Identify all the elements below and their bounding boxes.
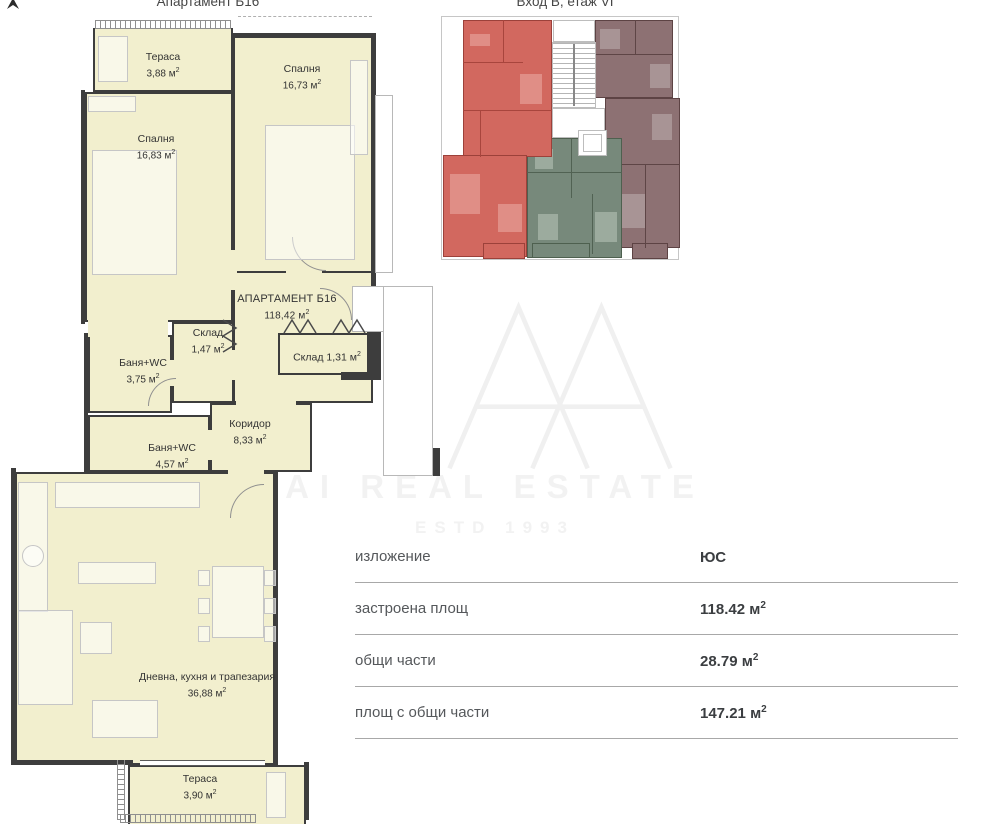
- opening: [236, 399, 296, 407]
- wall-segment: [273, 470, 278, 766]
- mini-unit-mauve-terrace: [632, 243, 668, 259]
- room-label-storage-131: Склад 1,31 м2: [275, 348, 379, 365]
- furniture-dining-table: [212, 566, 264, 638]
- mini-wall: [635, 20, 636, 54]
- row-value: 147.21 м2: [700, 704, 958, 722]
- mini-furniture: [470, 34, 490, 46]
- mini-wall: [571, 138, 572, 198]
- apartment-title: Апартамент Б16: [98, 0, 318, 9]
- brand-monogram-icon: [425, 298, 695, 473]
- wall-segment: [81, 90, 85, 324]
- wall-segment: [84, 333, 88, 473]
- mini-stair-stringer: [573, 44, 575, 106]
- mini-elevator-car: [583, 134, 602, 152]
- mini-furniture: [498, 204, 522, 232]
- row-label: изложение: [355, 548, 700, 565]
- mini-wall: [645, 164, 646, 248]
- floor-plan-page: AI REAL ESTATE ESTD 1993 Апартамент Б16 …: [0, 0, 996, 824]
- room-label-terrace-bottom: Тераса 3,90 м2: [150, 772, 250, 803]
- opening: [228, 468, 264, 476]
- furniture-chair: [264, 598, 276, 614]
- room-label-bedroom-left: Спалня 16,83 м2: [106, 132, 206, 163]
- room-label-storage-147: Склад 1,47 м2: [168, 326, 248, 357]
- furniture-chair: [264, 626, 276, 642]
- wall-segment: [341, 372, 381, 380]
- furniture-chair: [198, 626, 210, 642]
- entrance-floor-title: Вход В, етаж VI: [455, 0, 675, 9]
- mini-furniture: [600, 29, 620, 49]
- table-row: общи части 28.79 м2: [355, 635, 958, 687]
- furniture-chair: [198, 570, 210, 586]
- railing: [120, 814, 256, 823]
- row-value: 118.42 м2: [700, 600, 958, 618]
- room-label-apartment: АПАРТАМЕНТ Б16 118,42 м2: [217, 292, 357, 323]
- mini-wall: [592, 194, 593, 254]
- mini-furniture: [650, 64, 670, 88]
- furniture-bed: [92, 150, 177, 275]
- mini-vestibule: [553, 20, 595, 42]
- north-arrow-icon: [5, 0, 21, 15]
- row-value: 28.79 м2: [700, 652, 958, 670]
- furniture-tv-cabinet: [92, 700, 158, 738]
- furniture-coffee-table: [80, 622, 112, 654]
- wall-segment: [231, 33, 375, 37]
- mini-wall: [527, 172, 622, 173]
- furniture-wardrobe: [88, 96, 136, 112]
- details-table: изложение ЮС застроена площ 118.42 м2 об…: [355, 531, 958, 739]
- table-row: изложение ЮС: [355, 531, 958, 583]
- mini-wall: [463, 62, 523, 63]
- balcony-dashed-line: [238, 16, 372, 17]
- mini-wall: [463, 110, 552, 111]
- mini-furniture: [520, 74, 542, 104]
- opening: [229, 250, 237, 290]
- furniture-kitchen-counter: [55, 482, 200, 508]
- wall-segment: [11, 760, 133, 765]
- opening: [88, 318, 168, 337]
- furniture-bed: [265, 125, 355, 260]
- room-label-terrace-top: Тераса 3,88 м2: [113, 50, 213, 81]
- landing-outline: [383, 286, 433, 476]
- mini-wall: [480, 110, 481, 157]
- row-label: площ с общи части: [355, 704, 700, 721]
- mini-furniture: [538, 214, 558, 240]
- room-label-bath-457: Баня+WC 4,57 м2: [122, 441, 222, 472]
- sliding-door: [140, 760, 265, 766]
- furniture-planter: [266, 772, 286, 818]
- mini-furniture: [595, 212, 617, 242]
- railing: [117, 760, 125, 820]
- table-row: площ с общи части 147.21 м2: [355, 687, 958, 739]
- furniture-chair: [198, 598, 210, 614]
- furniture-sofa: [18, 610, 73, 705]
- railing: [95, 20, 231, 29]
- furniture-chair: [264, 570, 276, 586]
- mini-wall: [595, 54, 673, 55]
- room-label-bedroom-top: Спалня 16,73 м2: [247, 62, 357, 93]
- mini-unit-green-terrace: [532, 243, 590, 258]
- furniture-sink: [22, 545, 44, 567]
- furniture-island: [78, 562, 156, 584]
- shaft-outline: [375, 95, 393, 273]
- mini-unit-red-terrace: [483, 243, 525, 259]
- mini-furniture: [652, 114, 672, 140]
- table-row: застроена площ 118.42 м2: [355, 583, 958, 635]
- watermark-text: AI REAL ESTATE: [265, 468, 725, 506]
- row-label: застроена площ: [355, 600, 700, 617]
- row-value: ЮС: [700, 548, 958, 566]
- mini-wall: [503, 20, 504, 62]
- row-label: общи части: [355, 652, 700, 669]
- room-label-bath-375: Баня+WC 3,75 м2: [103, 356, 183, 387]
- mini-furniture: [450, 174, 480, 214]
- building-mini-plan: [440, 14, 685, 264]
- room-label-living: Дневна, кухня и трапезария 36,88 м2: [107, 670, 307, 701]
- watermark-logo: [425, 298, 695, 473]
- wall-segment: [304, 762, 309, 820]
- wall-segment: [11, 468, 16, 764]
